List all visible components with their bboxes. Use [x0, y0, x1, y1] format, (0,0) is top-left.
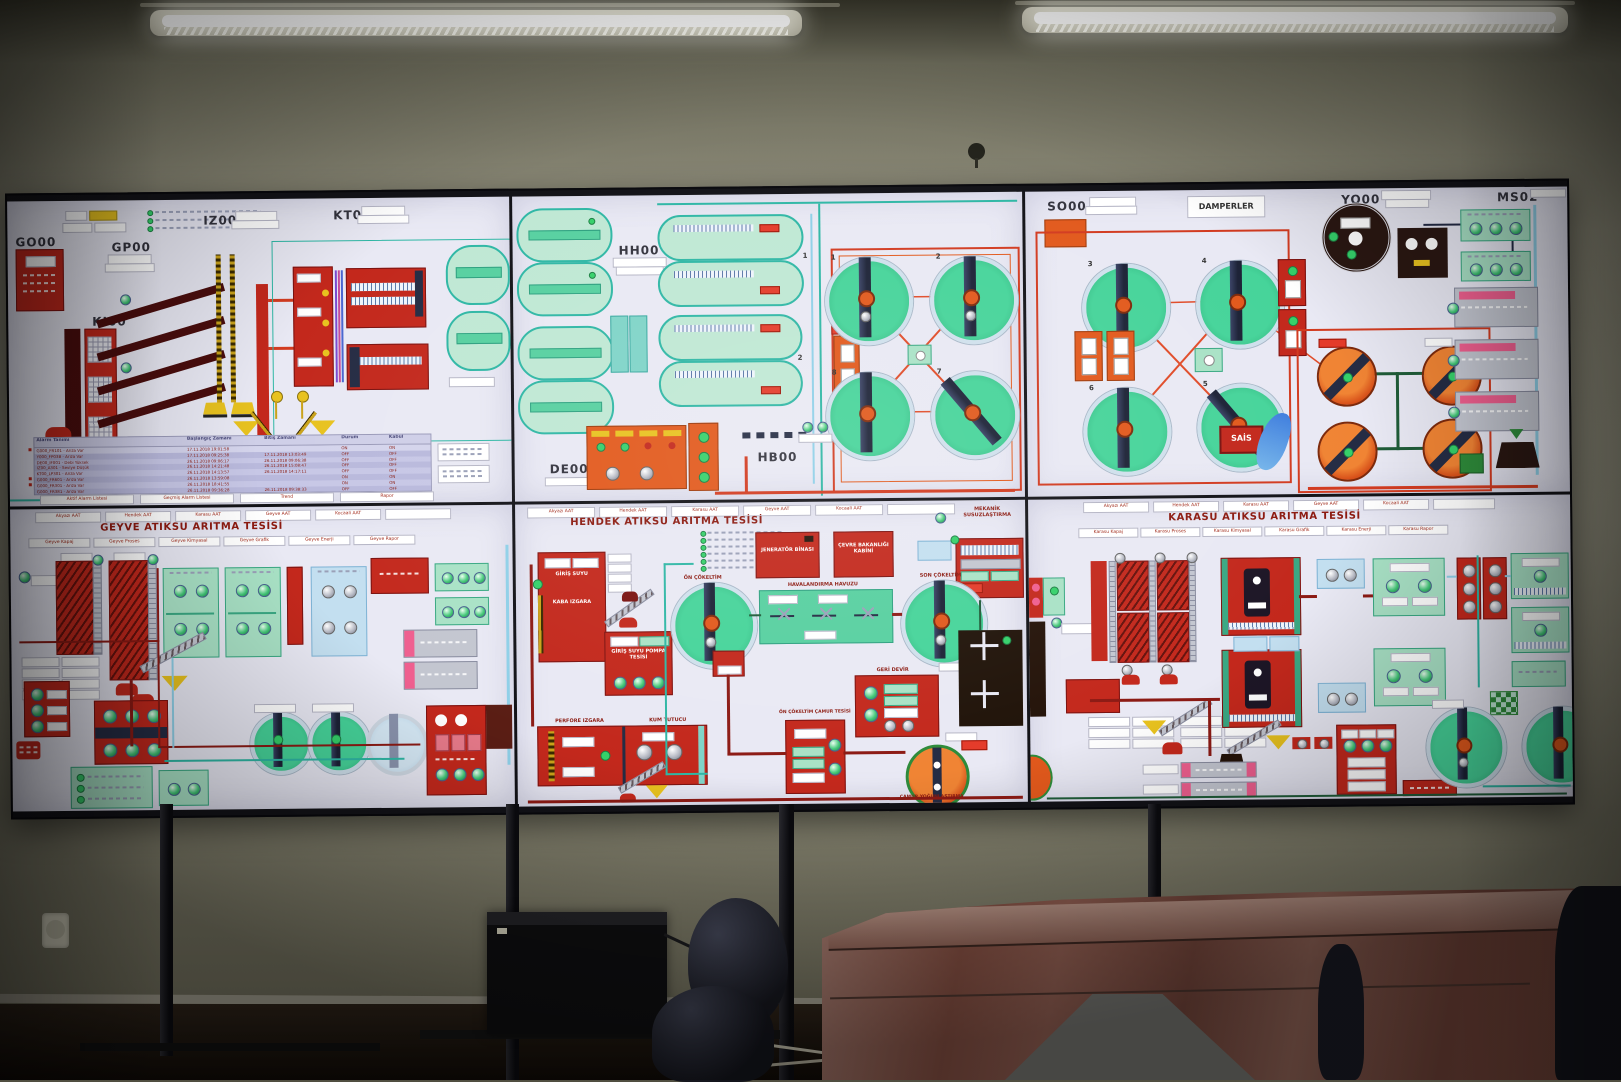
micro-text	[420, 641, 468, 643]
nav-button-sub: Karasu Enerji	[1326, 525, 1386, 536]
ceiling-conduit	[1015, 1, 1575, 5]
pump	[864, 708, 878, 722]
value-box	[1348, 781, 1386, 791]
tag-box	[718, 665, 742, 674]
nav-button-plant: Kocaali AAT	[815, 504, 883, 516]
value-box	[1383, 687, 1409, 696]
scum-box	[712, 650, 744, 676]
pump	[1469, 222, 1482, 235]
pump-station-label: GİRİŞ SUYU POMPA TESİSİ	[605, 648, 671, 661]
clarifier-number: 6	[1089, 384, 1094, 392]
micro-text	[435, 758, 477, 760]
screen-bottom-middle-hendek: Akyazı AAT Hendek AAT Karasu AAT Geyve A…	[515, 500, 1028, 807]
screen-top-left: GO00 KI00 GP00 IZ00 K	[7, 197, 512, 507]
dewatering-hall	[1221, 649, 1302, 728]
pipe	[843, 751, 905, 755]
micro-text	[88, 797, 144, 800]
tag-box	[1414, 260, 1430, 266]
pump	[474, 572, 486, 584]
pump	[1463, 582, 1476, 595]
weir-comb	[1228, 622, 1294, 630]
pump-slot	[1114, 358, 1129, 375]
conveyor-channel	[1149, 560, 1157, 662]
pump	[829, 763, 842, 776]
status-led	[77, 785, 85, 793]
pump	[322, 621, 335, 634]
value-box	[794, 729, 826, 739]
aeration-rotor	[530, 348, 602, 359]
value-box	[562, 737, 594, 747]
chem-tank	[467, 734, 481, 751]
value-box	[1348, 769, 1386, 779]
value-box	[642, 732, 674, 741]
weir-comb	[351, 283, 421, 292]
micro-text	[380, 573, 420, 575]
alarm-cell: OFF	[340, 485, 388, 491]
screen-unit	[1117, 613, 1149, 663]
cake-hopper	[1495, 442, 1539, 468]
screen-column	[1483, 557, 1508, 619]
conveyor-channel	[1109, 561, 1117, 663]
value-box	[62, 668, 100, 678]
pump	[103, 709, 117, 723]
micro-text	[23, 274, 57, 276]
valve-icon	[742, 432, 750, 438]
grit-pump	[636, 744, 652, 760]
nav-button-plant: Kocaali AAT	[1363, 499, 1429, 511]
pipe	[130, 680, 134, 746]
polymer-pump-group	[1460, 209, 1530, 242]
scada-code-de00: DE00	[550, 462, 589, 476]
pc-case	[487, 912, 667, 1034]
oxidation-ditch	[659, 360, 803, 407]
gas-holder	[1321, 202, 1392, 273]
micro-text	[19, 746, 37, 748]
micro-text	[1196, 769, 1244, 771]
pipe	[745, 456, 748, 492]
pipe	[1047, 793, 1567, 800]
inlet-label: GİRİŞ SUYU	[539, 571, 605, 578]
screen-top-right: SO00 3 4 6 5 DAMPERLER SAİS	[1025, 187, 1570, 497]
micro-text	[88, 786, 144, 789]
pump	[174, 623, 187, 636]
ras-station	[855, 675, 940, 738]
funnel	[162, 676, 188, 691]
micro-text	[1196, 789, 1244, 791]
pipe	[666, 773, 708, 775]
value-box	[1088, 739, 1130, 749]
pc-case-top	[487, 912, 667, 925]
status-led	[700, 538, 706, 544]
gauge	[435, 714, 447, 726]
storage-building	[486, 705, 512, 749]
status-led	[588, 218, 595, 225]
value-box	[545, 558, 571, 568]
value-box	[312, 703, 354, 712]
blower-group	[435, 563, 489, 592]
nav-button-plant: Hendek AAT	[105, 511, 171, 523]
edge-unit	[1029, 578, 1043, 618]
nav-button-plant: Hendek AAT	[1153, 501, 1219, 513]
lamp-tube	[162, 15, 790, 27]
pipe	[171, 658, 174, 748]
diffuser-row	[675, 370, 755, 378]
sludge-container	[116, 683, 138, 695]
status-led	[1002, 636, 1011, 645]
value-green	[792, 759, 824, 769]
inlet-building: GİRİŞ SUYU KABA IZGARA	[538, 552, 607, 663]
pipe	[1299, 595, 1317, 598]
indicator	[322, 289, 329, 296]
pump	[103, 743, 117, 757]
pump	[828, 739, 841, 752]
tag-box	[639, 430, 657, 436]
nav-button-sub: Geyve Proses	[93, 537, 155, 548]
nav-button-sub: Geyve Kimyasal	[158, 536, 220, 547]
aeration-rotor	[530, 402, 602, 413]
value-box	[608, 554, 632, 563]
alarm-table: Alarm Tanımı Başlangıç Zamanı Bitiş Zama…	[33, 433, 432, 495]
equalization-tank	[311, 566, 368, 657]
value-box	[1143, 784, 1179, 794]
pump	[1463, 600, 1476, 613]
pump	[258, 584, 271, 597]
pump	[817, 422, 828, 433]
sludge-container	[1162, 742, 1182, 754]
chemical-building	[426, 705, 487, 796]
edge-panel	[1043, 577, 1065, 615]
de00-pump-column	[688, 423, 719, 491]
value-box	[21, 657, 59, 667]
ras-label: GERİ DEVİR	[877, 667, 909, 673]
scada-code-hb00: HB00	[758, 450, 798, 464]
clarifier-drive	[1459, 757, 1469, 767]
wall-stand-pole	[160, 804, 173, 1056]
pump-box	[1292, 737, 1310, 749]
clarifier-drive	[965, 310, 976, 321]
pump	[168, 783, 181, 796]
value-box	[884, 708, 918, 718]
alarm-footer-button: Geçmiş Alarm Listesi	[140, 493, 234, 504]
cabinet-label: ÇEVRE BAKANLIĞI KABİNİ	[834, 542, 892, 555]
roller	[961, 559, 1021, 570]
scada-code-go00: GO00	[15, 235, 56, 249]
clarifier-drive	[705, 637, 716, 648]
alarm-tag	[759, 224, 779, 232]
diffuser-row	[1514, 642, 1566, 649]
clarifier-hub	[963, 289, 980, 306]
pipe	[1208, 698, 1212, 756]
clarifier-number: 4	[1202, 257, 1207, 265]
aeration-lane	[516, 208, 613, 263]
tag-box	[47, 706, 67, 715]
value-box	[297, 307, 321, 316]
pump	[1470, 263, 1483, 276]
screen-label: KABA IZGARA	[539, 599, 605, 606]
grit-tank	[346, 343, 428, 390]
value-box	[65, 211, 87, 221]
pipe	[810, 214, 815, 484]
nav-button-sub: Geyve Kapaj	[28, 538, 90, 549]
col-header: Kabul	[387, 434, 431, 443]
status-led	[1328, 232, 1338, 242]
wash-water-tank	[917, 540, 951, 560]
value-box	[1348, 757, 1386, 767]
clarifier-drive	[860, 311, 871, 322]
pump	[606, 467, 620, 481]
value-box	[26, 256, 56, 267]
value-box	[1413, 687, 1439, 696]
pump	[1418, 579, 1432, 593]
sludge-pump-station	[1336, 724, 1397, 795]
chamber-port	[1204, 355, 1215, 366]
pump-running	[698, 432, 709, 443]
tag-box	[615, 431, 633, 437]
oxidation-ditch	[657, 214, 803, 261]
motor-icon	[1115, 553, 1126, 564]
office-chair-back	[652, 986, 774, 1082]
pump	[1297, 739, 1307, 749]
status-led	[1449, 445, 1459, 455]
value-box	[1522, 558, 1560, 567]
nav-button-plant: Kocaali AAT	[315, 509, 381, 521]
col-header: Alarm Tanımı	[34, 437, 185, 447]
screen-building	[109, 560, 150, 680]
funnel	[1266, 735, 1290, 749]
micro-text	[421, 673, 469, 675]
value-box	[254, 704, 296, 713]
pump	[236, 622, 249, 635]
boiler-unit	[1397, 228, 1447, 278]
clarifier-number: 5	[1203, 380, 1208, 388]
screen-top-middle: HH00 1 2 DE00	[512, 192, 1025, 502]
belt-press	[404, 661, 478, 690]
screen-bottom-left-geyve: Akyazı AAT Hendek AAT Karasu AAT Geyve A…	[10, 505, 515, 812]
pump	[1447, 303, 1459, 315]
nav-button-plant: Karasu AAT	[175, 510, 241, 522]
divider	[228, 612, 276, 614]
status-led	[1050, 586, 1059, 595]
divider	[622, 727, 626, 785]
table-seam	[830, 983, 1530, 1000]
pump-slot	[1081, 338, 1096, 355]
ceiling-conduit	[140, 3, 840, 7]
divider	[166, 613, 214, 615]
value-box	[61, 657, 99, 667]
pump	[614, 677, 627, 690]
gauge	[455, 714, 467, 726]
gauge	[1406, 238, 1418, 250]
pump-running	[699, 472, 710, 483]
pipe	[818, 204, 823, 496]
motor-icon	[147, 554, 158, 565]
pump-station	[24, 681, 71, 737]
pipe	[657, 200, 1017, 205]
weir-comb	[351, 297, 421, 306]
pump	[1534, 624, 1547, 637]
alarm-tag	[760, 324, 780, 332]
oxidation-ditch	[658, 314, 802, 361]
clarifier-drive	[331, 734, 341, 744]
container	[1460, 453, 1484, 473]
aeration-rotor	[456, 333, 502, 344]
wall-sensor-stem	[975, 158, 978, 168]
ministry-cabinet: ÇEVRE BAKANLIĞI KABİNİ	[833, 531, 893, 578]
pipe	[727, 675, 731, 755]
note-box	[437, 443, 489, 461]
pipe	[1363, 594, 1373, 597]
gauge	[1254, 668, 1262, 676]
flow-arrow	[1509, 429, 1523, 439]
value-box	[1390, 563, 1430, 572]
pump	[1489, 564, 1502, 577]
screen-bottom-right-karasu: Akyazı AAT Hendek AAT Karasu AAT Geyve A…	[1028, 495, 1573, 802]
pump	[864, 686, 878, 700]
port	[934, 762, 941, 769]
pump	[1448, 355, 1460, 367]
valve-icon	[784, 432, 792, 438]
status-led	[533, 579, 543, 589]
nav-button-sub: Geyve Rapor	[353, 535, 415, 546]
micro-text	[19, 751, 37, 753]
valve-closed	[668, 442, 675, 449]
press-cap	[1182, 783, 1191, 797]
gas-holder-port	[1348, 231, 1362, 245]
pipe	[1447, 576, 1457, 578]
pipe	[715, 489, 1015, 495]
blower-group	[435, 597, 489, 626]
primary-sludge-station	[785, 719, 846, 794]
motor-icon	[93, 555, 104, 566]
belt-press-cover	[404, 631, 414, 657]
pipe	[1483, 785, 1571, 788]
micro-text	[318, 570, 360, 572]
aeration-lane	[446, 311, 511, 372]
digester	[1317, 421, 1378, 482]
aeration-tank	[225, 567, 282, 658]
pump-running	[699, 452, 710, 463]
pump	[472, 768, 485, 781]
micro-text	[23, 282, 57, 284]
value-box	[297, 273, 321, 282]
belt-press	[1455, 391, 1539, 432]
nav-button-sub: Karasu Grafik	[1264, 526, 1324, 537]
value-green	[884, 684, 918, 694]
pump	[1387, 669, 1401, 683]
polymer-pump-group	[1461, 251, 1531, 282]
status-led	[147, 210, 153, 216]
outlet-socket	[46, 920, 65, 939]
tag-box	[1424, 338, 1452, 347]
conveyor-channel	[1189, 560, 1197, 662]
value-box	[1180, 727, 1222, 737]
pipe	[749, 614, 761, 616]
pump	[1327, 693, 1340, 706]
value-box	[1143, 764, 1179, 774]
pump	[31, 720, 44, 733]
pump	[442, 572, 454, 584]
value-box	[616, 266, 664, 275]
micro-text	[232, 571, 274, 573]
aeration-lane	[446, 245, 511, 306]
scum-pump-unit	[1278, 259, 1306, 306]
aeration-basin	[759, 589, 894, 644]
tag-box	[47, 722, 67, 731]
generator-building: JENERATÖR BİNASI	[755, 532, 819, 579]
alarm-tag	[961, 740, 987, 750]
tag-box	[663, 430, 681, 436]
scada-code-hh00: HH00	[619, 243, 660, 257]
weir-comb	[356, 357, 422, 366]
clarifier-hub	[1115, 297, 1132, 314]
value-box	[357, 215, 409, 224]
motor-icon	[1187, 552, 1198, 563]
indicator	[322, 319, 329, 326]
pump	[1345, 693, 1358, 706]
pump-slot	[1285, 280, 1301, 298]
pipe	[664, 563, 694, 565]
status-led	[1288, 316, 1298, 326]
value-box	[1385, 199, 1429, 208]
value-green	[991, 571, 1019, 581]
value-box	[610, 636, 638, 646]
pump	[1509, 222, 1522, 235]
value-box	[449, 377, 495, 387]
aeration-basin	[1511, 553, 1569, 600]
chain	[548, 731, 554, 781]
nav-button-blank	[385, 508, 451, 520]
pump	[1489, 222, 1502, 235]
port	[934, 784, 941, 791]
grit-tank	[346, 267, 427, 328]
value-box	[105, 263, 155, 272]
aeration-rotor	[528, 230, 600, 241]
primary-clarifier-label: ÖN ÇÖKELTİM	[684, 575, 722, 581]
value-box	[1377, 729, 1394, 738]
value-green	[884, 696, 918, 706]
contact-tank	[1512, 661, 1566, 688]
pump	[1379, 739, 1392, 752]
dewatering-label: MEKANİK SUSUZLAŞTIRMA	[951, 506, 1023, 519]
chlorine-tank	[287, 567, 304, 645]
basin-number: 1	[803, 252, 808, 260]
inlet-channel	[1091, 561, 1108, 661]
clarifier-hub	[964, 404, 981, 421]
aerator-prop	[820, 608, 832, 620]
micro-text	[443, 470, 483, 472]
scada-code-gp00: GP00	[111, 240, 150, 254]
belt-press	[1454, 287, 1538, 328]
aerator-prop	[778, 608, 790, 620]
funnel	[233, 421, 259, 436]
sludge-container	[1160, 674, 1178, 684]
chain	[538, 595, 544, 653]
motor-icon	[120, 294, 131, 305]
pump	[454, 768, 467, 781]
note-box	[438, 465, 490, 483]
belt-press	[1181, 762, 1257, 779]
inlet-structure	[16, 249, 65, 311]
diffuser-row	[1514, 588, 1566, 595]
hopper	[203, 402, 227, 414]
nav-button-plant: Karasu AAT	[1223, 500, 1289, 512]
inlet-pump-station: GİRİŞ SUYU POMPA TESİSİ	[604, 631, 673, 696]
valve-open	[596, 443, 605, 452]
clarifier-hub	[859, 405, 876, 422]
aeration-rotor	[529, 284, 601, 295]
status-led	[77, 796, 85, 804]
micro-text	[1410, 787, 1450, 789]
